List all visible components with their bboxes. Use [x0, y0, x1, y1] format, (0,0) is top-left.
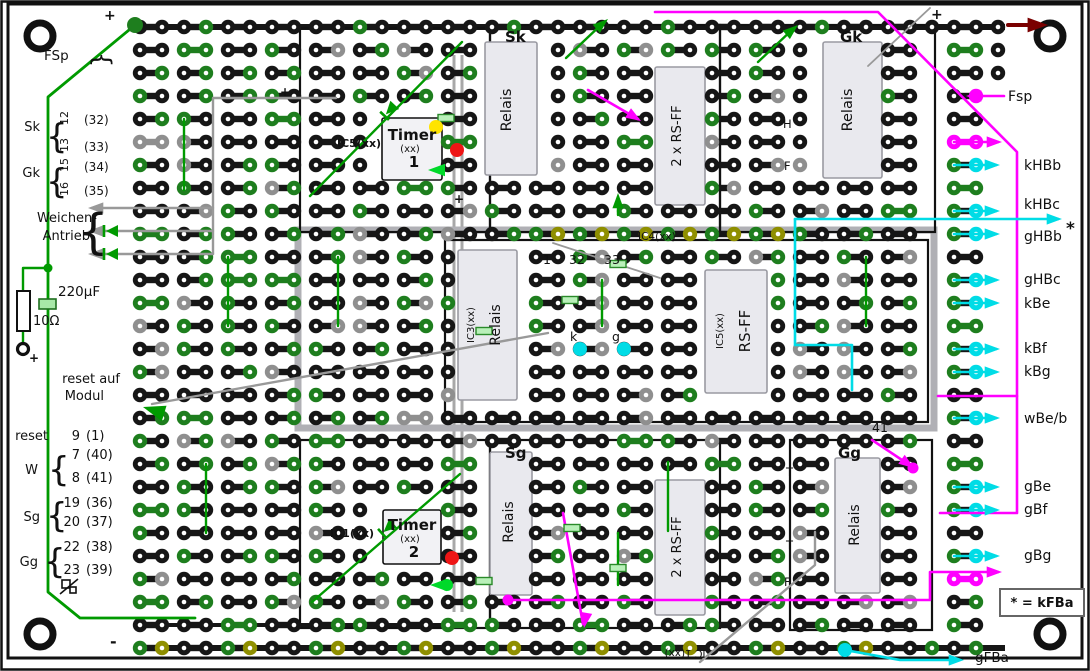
sg-left-label: Sg [23, 510, 40, 525]
ic3-label: IC3(xx) [466, 307, 477, 343]
label-g: g [612, 329, 620, 344]
sk-pin-0: 12 [58, 111, 71, 125]
w-alt-0: (40) [86, 448, 113, 463]
resistor-label: 10Ω [33, 314, 60, 329]
sg-rsff-label: 2 x RS-FF [670, 516, 685, 577]
gk-left-label: Gk [22, 166, 40, 181]
stripboard-wiring-diagram: FSp { Sk { 12 (32) 13 (33) Gk { 15 (34) … [0, 0, 1090, 671]
gk-alt-1: (35) [84, 184, 109, 198]
num-33: 33 [604, 252, 620, 267]
timer1-number: 1 [409, 153, 419, 171]
center-rsff-label: RS-FF [736, 310, 754, 353]
signal-label-ghbb: gHBb [1024, 229, 1062, 245]
reset-note-2: Modul [65, 389, 104, 404]
indicator-dot [503, 595, 514, 606]
resistor-body [17, 291, 30, 331]
ic4-label: IC4(xx) [638, 231, 676, 243]
module-gk-title: Gk [840, 28, 863, 46]
star-mark: * [1066, 219, 1075, 239]
relay-terminal-letter: T [785, 538, 794, 552]
mounting-hole [27, 23, 53, 49]
sg-alt-1: (37) [86, 515, 113, 530]
sk-alt-1: (33) [84, 140, 109, 154]
signal-label-kbf: kBf [1024, 341, 1048, 357]
signal-label-khbb: kHBb [1024, 158, 1061, 174]
num-1: 1 [543, 252, 551, 267]
circuit-board-canvas: FSp { Sk { 12 (32) 13 (33) Gk { 15 (34) … [0, 0, 1090, 671]
signal-label-wbeb: wBe/b [1024, 411, 1067, 427]
timer1-name: Timer [388, 126, 437, 144]
plus-top-right: + [931, 7, 943, 23]
reset-alt: (1) [86, 429, 104, 444]
timer2-name: Timer [388, 516, 437, 534]
plus-top-left: + [104, 8, 116, 24]
weichen-brace: { [78, 204, 109, 260]
plus-cap-pad: + [29, 351, 39, 365]
gk-pin-1: 16 [58, 182, 71, 196]
signal-label-ghbc: gHBc [1024, 272, 1061, 288]
w-label: W [25, 463, 38, 478]
gg-brace: { [44, 542, 66, 582]
capacitor-label: 220µF [58, 284, 100, 300]
fsp-brace: { [88, 52, 116, 67]
plus-mid-1: + [280, 85, 290, 99]
sk-left-label: Sk [24, 120, 40, 135]
relay-terminal-letter: F [784, 575, 791, 589]
plus-mid-2: + [454, 192, 464, 206]
indicator-dot [44, 264, 53, 273]
sg-alt-0: (36) [86, 496, 113, 511]
w-pin-1: 8 [72, 471, 80, 486]
signal-label-kbg: kBg [1024, 364, 1051, 380]
jumper-icon [438, 115, 454, 122]
gg-alt-1: (39) [86, 563, 113, 578]
num-32: 32 [569, 252, 585, 267]
sg-pin-1: 20 [63, 515, 80, 530]
ic-bottom-label: IC 1(xx) [664, 647, 705, 659]
jumper-icon [562, 297, 578, 304]
module-sk-title: Sk [505, 28, 527, 46]
module-sg-title: Sg [505, 444, 527, 462]
gfba-label: gFBa [975, 650, 1009, 666]
jumper-icon [476, 578, 492, 585]
signal-label-gbf: gBf [1024, 502, 1048, 518]
gk-relais-label: Relais [840, 89, 856, 132]
timer1-ic: IC5(xx) [337, 137, 381, 150]
gk-pin-0: 15 [58, 158, 71, 172]
reset-note-1: reset auf [62, 372, 120, 387]
gg-pin-0: 22 [63, 540, 80, 555]
relay-terminal-letter: T [785, 465, 794, 479]
indicator-dot [573, 342, 587, 356]
sg-pin-0: 19 [63, 496, 80, 511]
signal-label-gbg: gBg [1024, 548, 1051, 564]
jumper-icon [610, 565, 626, 572]
indicator-dot [617, 342, 631, 356]
indicator-dot [450, 143, 464, 157]
reset-pin: 9 [72, 429, 80, 444]
sk-pin-1: 13 [58, 138, 71, 152]
indicator-dot [908, 463, 919, 474]
reset-label: reset [15, 429, 48, 444]
gg-alt-0: (38) [86, 540, 113, 555]
num-41: 41 [872, 420, 888, 435]
capacitor-body [39, 299, 56, 309]
gg-pin-1: 23 [63, 563, 80, 578]
timer2-number: 2 [409, 543, 419, 561]
sk-rsff-label: 2 x RS-FF [670, 105, 685, 166]
sk-alt-0: (32) [84, 113, 109, 127]
sk-relais-label: Relais [499, 89, 515, 132]
indicator-dot [838, 643, 852, 657]
signal-label-gbe: gBe [1024, 479, 1051, 495]
fsp-right-label: Fsp [1008, 89, 1032, 105]
w-pin-0: 7 [72, 448, 80, 463]
indicator-dot [445, 551, 459, 565]
gg-relais-label: Relais [847, 504, 863, 545]
indicator-dot [441, 579, 453, 591]
w-brace: { [48, 450, 70, 490]
mounting-hole [1037, 621, 1063, 647]
gg-left-label: Gg [20, 555, 38, 570]
sg-relais-label: Relais [501, 501, 517, 542]
relay-terminal-letter: H [783, 117, 792, 131]
timer2-ic: IC1(xx) [330, 527, 374, 540]
relay-terminal-letter: F [784, 159, 791, 173]
mounting-hole [27, 621, 53, 647]
signal-label-khbc: kHBc [1024, 197, 1060, 213]
label-k: k [570, 329, 578, 344]
gk-alt-0: (34) [84, 160, 109, 174]
w-alt-1: (41) [86, 471, 113, 486]
signal-label-kbe: kBe [1024, 296, 1050, 312]
legend-text: * = kFBa [1011, 596, 1074, 611]
jumper-icon [564, 525, 580, 532]
module-gg-title: Gg [838, 444, 861, 462]
minus-bottom-left: - [110, 632, 117, 651]
ic5-label: IC5(xx) [715, 313, 726, 349]
terminal-pad [18, 344, 29, 355]
center-relais-label: Relais [488, 304, 504, 345]
fsp-left-label: FSp [44, 48, 69, 64]
